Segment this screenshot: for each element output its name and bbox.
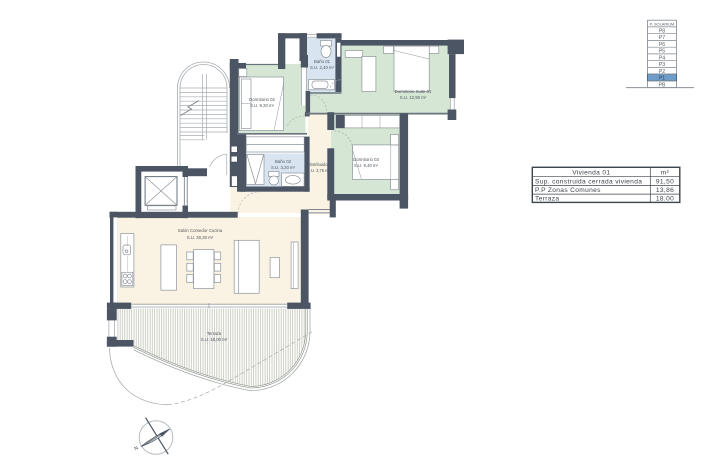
svg-text:P8: P8 bbox=[659, 28, 665, 34]
svg-text:S.U. 3,76 m²: S.U. 3,76 m² bbox=[307, 168, 331, 173]
svg-text:P.P Zonas Comunes: P.P Zonas Comunes bbox=[535, 187, 601, 194]
svg-text:S.U. 3,20 m²: S.U. 3,20 m² bbox=[271, 165, 296, 170]
svg-text:Baño 01: Baño 01 bbox=[314, 59, 331, 64]
svg-text:P6: P6 bbox=[659, 42, 665, 48]
svg-text:S.U. 12,90 m²: S.U. 12,90 m² bbox=[400, 95, 427, 100]
svg-text:Dormitorio 03: Dormitorio 03 bbox=[353, 157, 379, 162]
svg-text:S.U. 30,20 m²: S.U. 30,20 m² bbox=[187, 235, 214, 240]
svg-text:P2: P2 bbox=[659, 69, 665, 75]
svg-text:S.U. 9,20 m²: S.U. 9,20 m² bbox=[250, 103, 275, 108]
svg-text:P4: P4 bbox=[659, 55, 665, 61]
svg-text:P. SOLARIUM: P. SOLARIUM bbox=[650, 22, 675, 27]
svg-text:Terraza: Terraza bbox=[207, 331, 222, 336]
svg-text:S.U. 18,00 m²: S.U. 18,00 m² bbox=[201, 337, 228, 342]
svg-text:S.U. 2,40 m²: S.U. 2,40 m² bbox=[310, 65, 335, 70]
svg-text:P7: P7 bbox=[659, 35, 665, 41]
svg-text:Vivienda 01: Vivienda 01 bbox=[572, 169, 610, 176]
svg-text:18.00: 18.00 bbox=[656, 196, 674, 203]
svg-text:P1: P1 bbox=[659, 76, 665, 82]
svg-text:Dormitorio Suite 01: Dormitorio Suite 01 bbox=[395, 89, 432, 94]
svg-text:Sup. construida cerrada vivien: Sup. construida cerrada vivienda bbox=[535, 178, 642, 185]
svg-text:91,50: 91,50 bbox=[656, 178, 674, 185]
svg-text:13,86: 13,86 bbox=[656, 187, 674, 194]
svg-text:Terraza: Terraza bbox=[535, 196, 559, 203]
svg-text:S.U. 9,40 m²: S.U. 9,40 m² bbox=[354, 163, 379, 168]
svg-text:Dormitorio 02: Dormitorio 02 bbox=[249, 97, 275, 102]
svg-text:P3: P3 bbox=[659, 62, 665, 68]
svg-text:Baño 02: Baño 02 bbox=[275, 159, 292, 164]
svg-text:Distribuidor: Distribuidor bbox=[308, 162, 329, 167]
svg-text:Salón Comedor Cocina: Salón Comedor Cocina bbox=[178, 228, 223, 233]
svg-text:P5: P5 bbox=[659, 49, 665, 55]
svg-text:m²: m² bbox=[661, 169, 670, 176]
